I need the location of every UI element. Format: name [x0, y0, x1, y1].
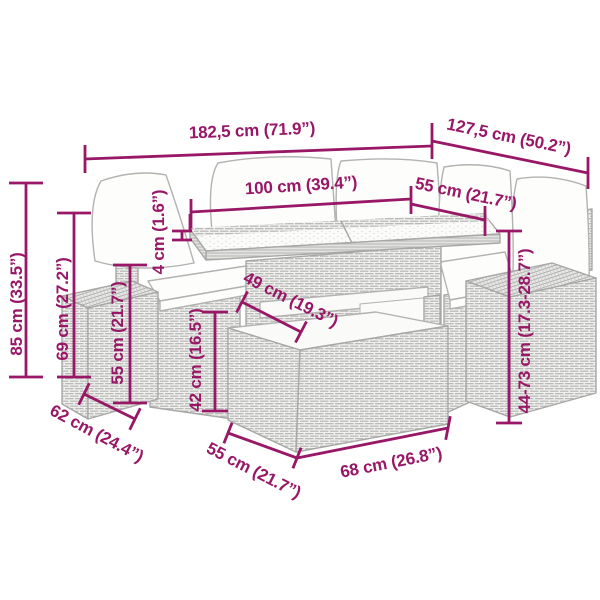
- dimension-adjustable-height-label: 44-73 cm (17.3-28.7”): [515, 249, 534, 414]
- dimension-back-height-label: 69 cm (27.2”): [53, 257, 72, 360]
- back-cushion-1: [92, 173, 194, 268]
- dimension-total-height: 85 cm (33.5”): [7, 183, 43, 377]
- right-armrest-front: [466, 281, 510, 417]
- dimension-stool-height-label: 42 cm (16.5”): [186, 308, 205, 411]
- dimension-total-height-label: 85 cm (33.5”): [7, 252, 26, 355]
- dimension-total-width-label: 182,5 cm (71.9”): [189, 119, 316, 143]
- dimension-diagram: 182,5 cm (71.9”) 127,5 cm (50.2”) 100 cm…: [0, 0, 600, 600]
- dimension-arm-height-label: 55 cm (21.7”): [108, 281, 127, 384]
- footstool-left: [228, 328, 300, 452]
- dimension-stool-length-label: 68 cm (26.8”): [339, 443, 444, 481]
- dimension-glass-thickness-label: 4 cm (1.6”): [149, 190, 168, 275]
- dimension-total-depth-label: 127,5 cm (50.2”): [445, 115, 573, 159]
